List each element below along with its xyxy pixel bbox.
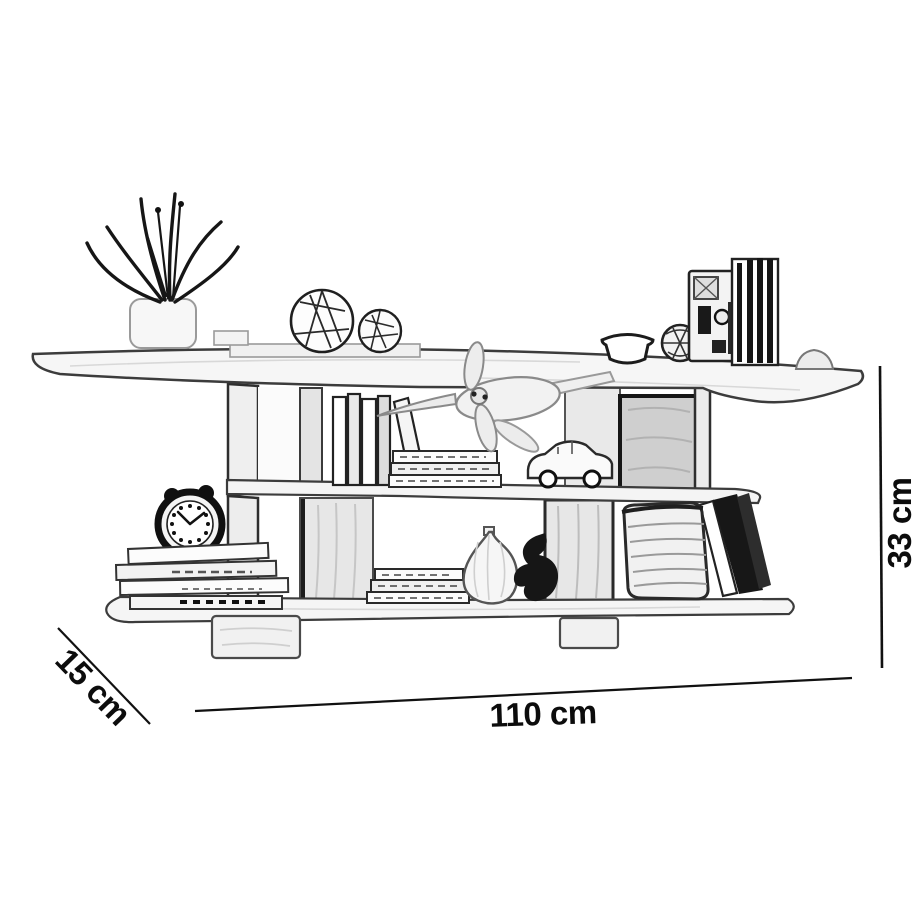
decor-vase	[464, 527, 518, 603]
dim-width-label: 110 cm	[486, 693, 599, 735]
dimension-diagram: 110 cm 33 cm 15 cm	[0, 0, 922, 922]
riser-step	[214, 331, 248, 345]
upright-books	[333, 394, 390, 485]
decor-camera	[689, 271, 736, 361]
lower-book-stack-mid	[367, 569, 469, 603]
upper-right-post	[695, 384, 710, 496]
plant-leaves	[87, 194, 238, 302]
plant-bud	[155, 207, 161, 213]
decor-bowl	[602, 335, 653, 364]
storage-basket	[622, 493, 771, 599]
plant-bud	[178, 201, 184, 207]
potted-plant	[87, 194, 238, 348]
lower-book-stack-left	[116, 543, 288, 609]
upper-book-stack	[389, 451, 501, 487]
dim-height-label: 33 cm	[881, 467, 919, 579]
basket-body	[624, 503, 708, 599]
car-wheel	[584, 471, 600, 487]
upper-gap-panel	[258, 387, 300, 492]
shelf-sketch	[0, 0, 922, 922]
decor-sphere-large	[291, 290, 353, 352]
car-wheel	[540, 471, 556, 487]
bracket-right	[560, 618, 618, 648]
upper-divider	[300, 388, 322, 487]
bracket-left	[212, 616, 300, 658]
plant-pot	[130, 299, 196, 348]
decor-dome	[796, 350, 833, 369]
plane-hub-dot	[482, 394, 487, 399]
decor-sphere-small	[359, 310, 401, 352]
decor-book-row	[732, 258, 778, 365]
plane-hub-dot	[471, 391, 476, 396]
